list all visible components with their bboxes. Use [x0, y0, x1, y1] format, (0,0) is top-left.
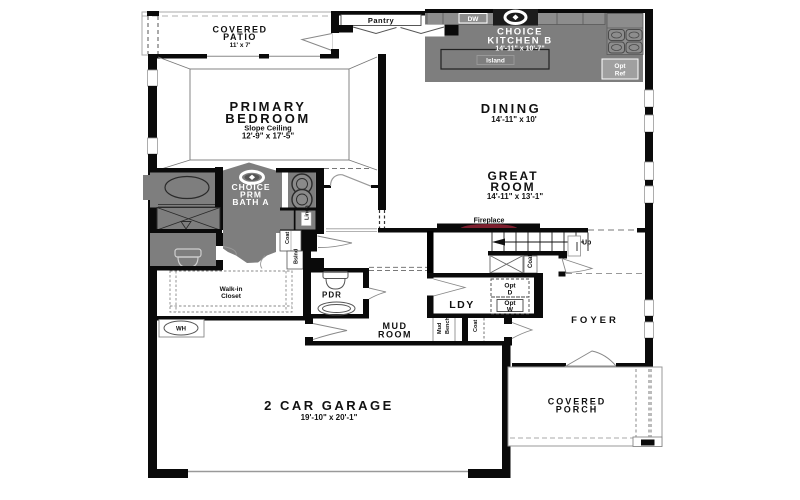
svg-text:19'-10" x 20'-1": 19'-10" x 20'-1": [301, 413, 358, 422]
svg-text:Coat: Coat: [285, 232, 291, 244]
svg-text:PATIO: PATIO: [223, 32, 257, 42]
svg-text:Opt: Opt: [614, 63, 626, 70]
svg-text:Linen: Linen: [305, 205, 311, 220]
svg-text:Mud: Mud: [437, 323, 443, 334]
svg-text:DW: DW: [468, 16, 480, 23]
svg-text:Coat: Coat: [528, 255, 534, 268]
svg-text:PDR: PDR: [322, 291, 342, 300]
svg-text:Opt: Opt: [504, 283, 516, 290]
svg-text:Pantry: Pantry: [368, 16, 395, 25]
svg-text:LDY: LDY: [449, 299, 475, 311]
svg-text:Walk-in: Walk-in: [220, 286, 243, 293]
svg-text:WH: WH: [176, 327, 186, 333]
svg-text:Coat: Coat: [473, 320, 479, 332]
svg-text:12'-9" x 17'-5": 12'-9" x 17'-5": [242, 132, 295, 141]
svg-text:Fireplace: Fireplace: [474, 218, 505, 225]
svg-text:BATH A: BATH A: [232, 197, 269, 207]
svg-text:2 CAR GARAGE: 2 CAR GARAGE: [264, 398, 394, 413]
svg-text:Ref: Ref: [615, 71, 626, 78]
svg-text:Closet: Closet: [221, 293, 242, 300]
svg-text:PORCH: PORCH: [556, 405, 599, 415]
svg-text:11' x 7': 11' x 7': [230, 42, 251, 49]
svg-text:Bench: Bench: [445, 317, 451, 334]
svg-text:ROOM: ROOM: [378, 330, 412, 340]
svg-text:D: D: [508, 290, 513, 297]
svg-text:14'-11" x 10': 14'-11" x 10': [491, 115, 537, 124]
svg-text:14'-11" x 10'-7": 14'-11" x 10'-7": [495, 46, 544, 53]
svg-text:Bslnd: Bslnd: [294, 249, 300, 264]
svg-text:Up: Up: [582, 240, 591, 247]
svg-text:DINING: DINING: [481, 101, 542, 116]
svg-text:Island: Island: [486, 58, 505, 65]
svg-text:FOYER: FOYER: [571, 315, 619, 326]
svg-text:14'-11" x 13'-1": 14'-11" x 13'-1": [487, 192, 544, 201]
svg-text:W: W: [507, 307, 514, 314]
